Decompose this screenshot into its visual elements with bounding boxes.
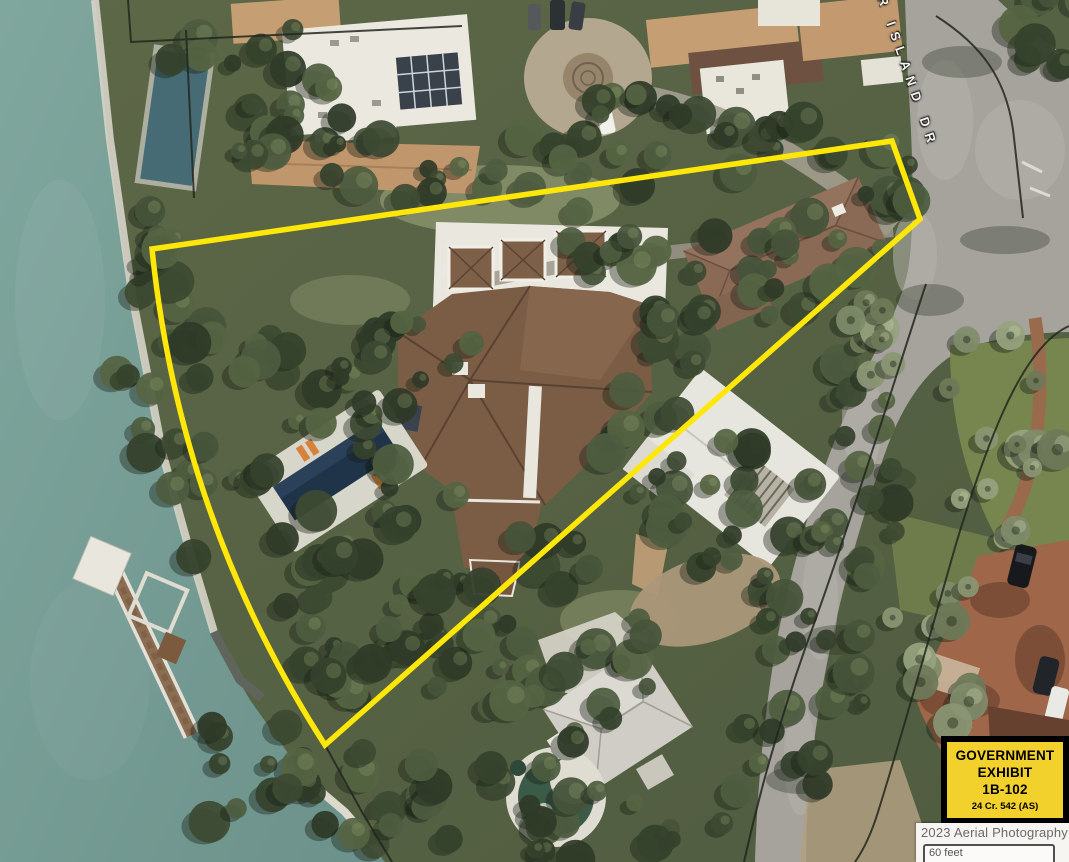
scale-box: 60 feet (923, 844, 1055, 862)
government-exhibit-stamp: GOVERNMENT EXHIBIT 1B-102 24 Cr. 542 (AS… (941, 736, 1069, 824)
exhibit-line2: EXHIBIT (947, 764, 1063, 781)
scale-text: 60 feet (929, 847, 963, 859)
exhibit-number: 1B-102 (947, 781, 1063, 798)
aerial-photo (0, 0, 1069, 862)
parked-car (528, 4, 541, 30)
exhibit-case-number: 24 Cr. 542 (AS) (947, 801, 1063, 812)
exhibit-page: R ISLAND DR GOVERNMENT EXHIBIT 1B-102 24… (0, 0, 1069, 862)
photo-credit-text: 2023 Aerial Photography (921, 825, 1069, 840)
parked-car (550, 0, 565, 30)
exhibit-line1: GOVERNMENT (947, 747, 1063, 764)
photo-credit: 2023 Aerial Photography 60 feet (916, 823, 1069, 862)
exhibit-stamp-inner: GOVERNMENT EXHIBIT 1B-102 24 Cr. 542 (AS… (947, 742, 1063, 818)
water-glint (15, 180, 105, 420)
